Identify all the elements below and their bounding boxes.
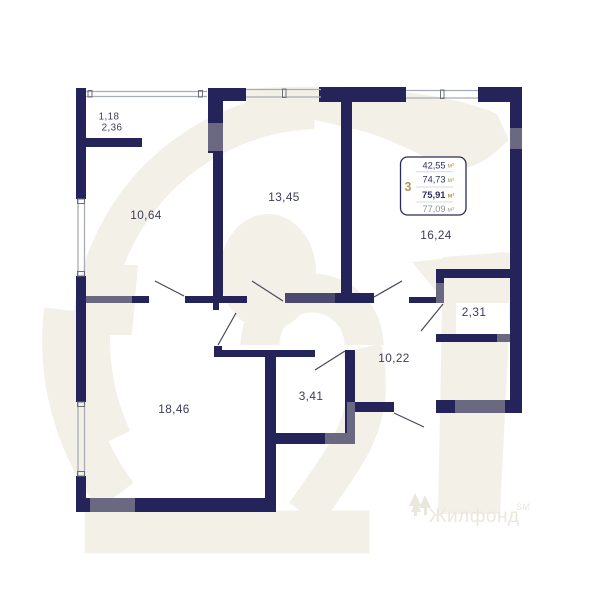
svg-text:2,31: 2,31	[462, 305, 487, 319]
svg-text:18,46: 18,46	[158, 402, 190, 416]
svg-text:75,91: 75,91	[422, 189, 445, 200]
svg-text:Жилфонд: Жилфонд	[429, 506, 520, 527]
svg-text:1,18: 1,18	[99, 112, 120, 123]
svg-text:3: 3	[405, 180, 412, 194]
svg-text:13,45: 13,45	[268, 190, 300, 204]
svg-text:3,41: 3,41	[299, 389, 324, 403]
svg-text:м²: м²	[448, 163, 455, 170]
svg-text:16,24: 16,24	[420, 228, 452, 242]
svg-text:10,22: 10,22	[378, 351, 410, 365]
svg-text:74,73: 74,73	[423, 175, 446, 185]
svg-text:м²: м²	[448, 193, 456, 200]
svg-text:77,09: 77,09	[423, 204, 446, 214]
svg-text:м²: м²	[448, 177, 455, 184]
svg-text:42,55: 42,55	[423, 160, 446, 170]
svg-text:м²: м²	[448, 206, 455, 213]
svg-text:SM: SM	[516, 502, 531, 512]
svg-text:10,64: 10,64	[130, 208, 162, 222]
svg-text:2,36: 2,36	[102, 123, 123, 134]
